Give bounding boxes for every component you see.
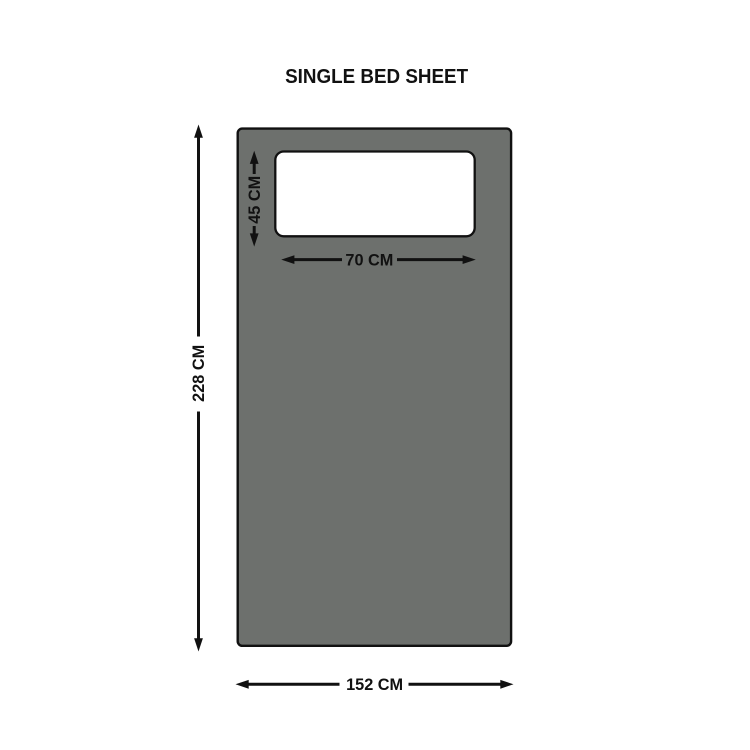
svg-text:228 CM: 228 CM xyxy=(190,345,208,402)
svg-text:70 CM: 70 CM xyxy=(345,251,393,269)
svg-text:45 CM: 45 CM xyxy=(246,176,264,224)
svg-text:SINGLE BED SHEET: SINGLE BED SHEET xyxy=(285,66,468,88)
svg-text:152 CM: 152 CM xyxy=(346,676,403,694)
